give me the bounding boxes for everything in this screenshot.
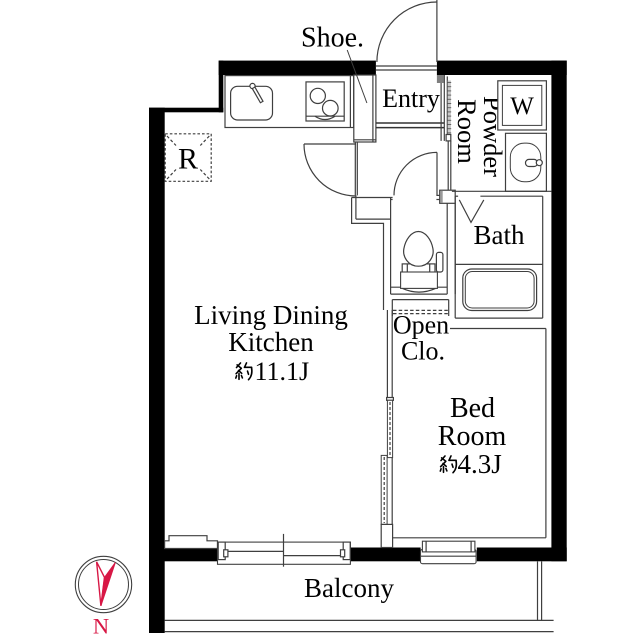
- svg-text:Shoe.: Shoe.: [301, 23, 364, 54]
- svg-text:N: N: [93, 614, 109, 639]
- svg-text:Living Dining: Living Dining: [194, 300, 348, 330]
- svg-text:Bed: Bed: [450, 393, 495, 424]
- svg-text:Bath: Bath: [474, 220, 525, 250]
- svg-text:Entry: Entry: [382, 84, 440, 113]
- svg-text:W: W: [510, 93, 534, 120]
- svg-text:Balcony: Balcony: [304, 573, 394, 603]
- svg-text:R: R: [178, 143, 198, 176]
- svg-text:Open: Open: [393, 311, 449, 340]
- svg-text:11.1J: 11.1J: [255, 357, 310, 386]
- svg-text:Room: Room: [438, 421, 507, 452]
- svg-text:4.3J: 4.3J: [458, 449, 502, 479]
- svg-text:Kitchen: Kitchen: [228, 327, 314, 357]
- svg-text:Clo.: Clo.: [401, 337, 445, 366]
